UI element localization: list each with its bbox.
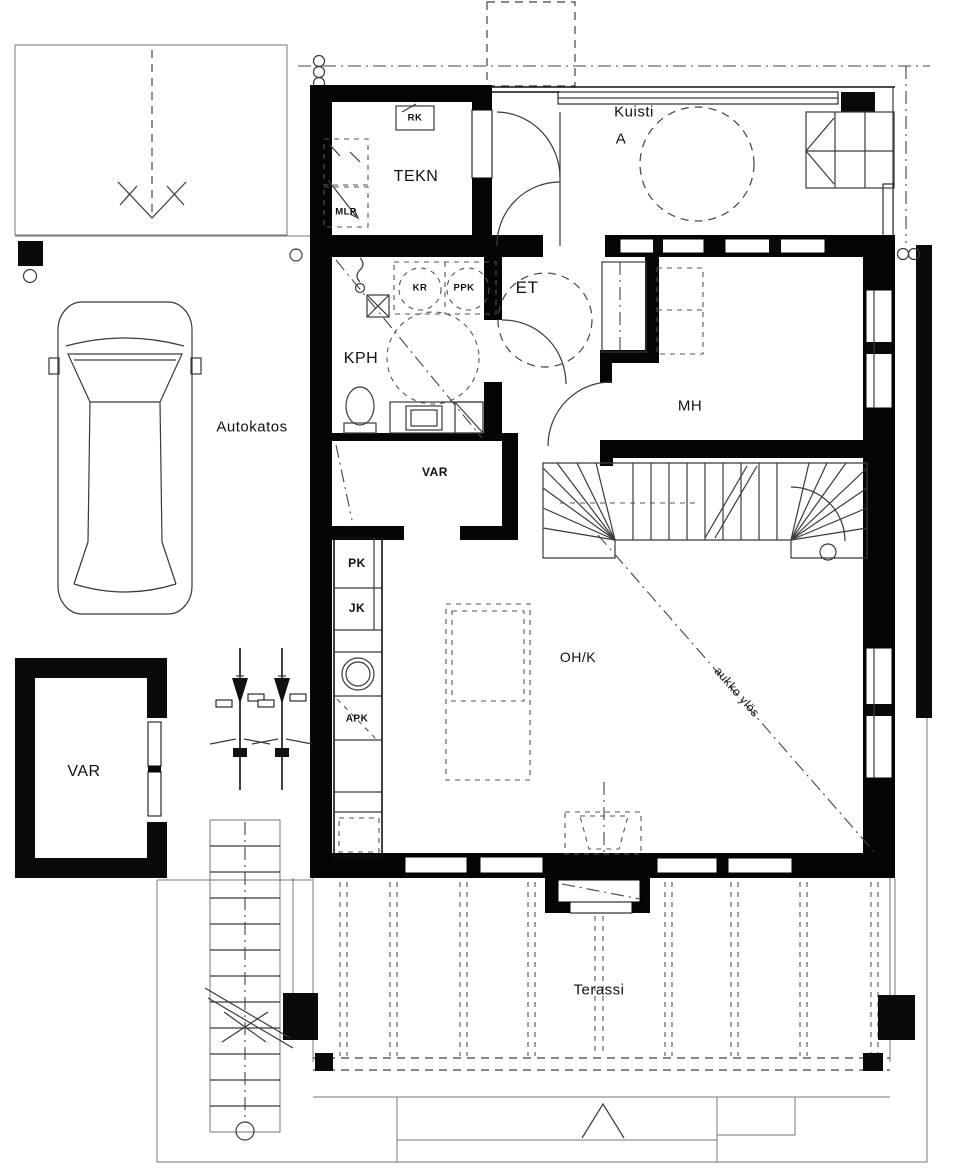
kuisti-room (640, 107, 894, 221)
appliance-label-kr: KR (413, 283, 428, 294)
room-label-ohk: OH/K (560, 649, 596, 665)
cabinet-dashed (339, 818, 379, 852)
step-arrow (582, 1104, 624, 1138)
walls (310, 85, 895, 913)
driveway-arrow-head (118, 182, 186, 218)
kitchen-island (446, 604, 530, 780)
doors (497, 112, 612, 446)
stair-break-line (715, 466, 757, 538)
bicycle (252, 648, 312, 790)
mh-wardrobe (657, 268, 703, 354)
storage-door (148, 722, 161, 766)
car (49, 302, 201, 614)
appliance-label-pk: PK (348, 556, 366, 570)
staircase (543, 463, 867, 560)
appliance-label-mlp: MLP (335, 207, 357, 218)
shower-circle (387, 312, 479, 404)
kitchen-sink (342, 658, 374, 690)
exterior-stairs (205, 820, 293, 1140)
bottom-step-notch (717, 1097, 795, 1135)
room-label-et: ET (516, 278, 539, 298)
bottom-step (397, 1097, 717, 1162)
door-arc-mh (548, 382, 612, 446)
kitchen-cabinets (334, 538, 382, 856)
floor-plan: Kuisti A TEKN RK MLP KPH KR PPK ET MH Au… (0, 0, 970, 1170)
driveway-outline (15, 45, 287, 235)
toilet (346, 387, 374, 425)
post-circle (290, 249, 302, 261)
kuisti-dashed-circle (640, 107, 754, 221)
room-label-var-closet: VAR (422, 465, 448, 479)
terrace-post (315, 1053, 333, 1071)
fireplace (565, 812, 641, 854)
plan-linework (0, 0, 970, 1170)
roof-outline-dashed (487, 2, 575, 86)
stair-break-line (205, 988, 290, 1038)
terrace-post (283, 993, 318, 1040)
mh-room (657, 268, 703, 354)
carport-post (18, 241, 43, 266)
entry-steps (806, 112, 894, 188)
room-label-autokatos: Autokatos (216, 419, 287, 436)
party-wall (916, 245, 932, 718)
site-line (157, 718, 927, 1162)
terrace-post (878, 995, 915, 1040)
marker-circle (314, 67, 325, 78)
room-label-kph: KPH (344, 350, 378, 368)
post-circle (24, 270, 37, 283)
room-label-mh: MH (678, 398, 702, 415)
room-label-kuisti: Kuisti (614, 104, 654, 121)
door-arc-tekn (497, 112, 560, 178)
appliance-label-ppk: PPK (453, 283, 474, 294)
door-arc-kph (502, 320, 566, 384)
marker-circle (314, 56, 325, 67)
room-label-tekn: TEKN (394, 168, 439, 186)
room-label-var-storage: VAR (67, 763, 100, 781)
appliance-label-jk: JK (349, 601, 365, 615)
marker-circle (898, 249, 909, 260)
room-label-kuisti-a: A (616, 131, 627, 148)
terrace-post (863, 1053, 883, 1071)
appliance-label-rk: RK (408, 113, 423, 124)
et-closet (602, 262, 646, 352)
shower-hose (357, 258, 363, 282)
appliance-label-apk: APK (346, 714, 369, 725)
room-label-terassi: Terassi (573, 982, 624, 999)
bicycle (210, 648, 270, 790)
